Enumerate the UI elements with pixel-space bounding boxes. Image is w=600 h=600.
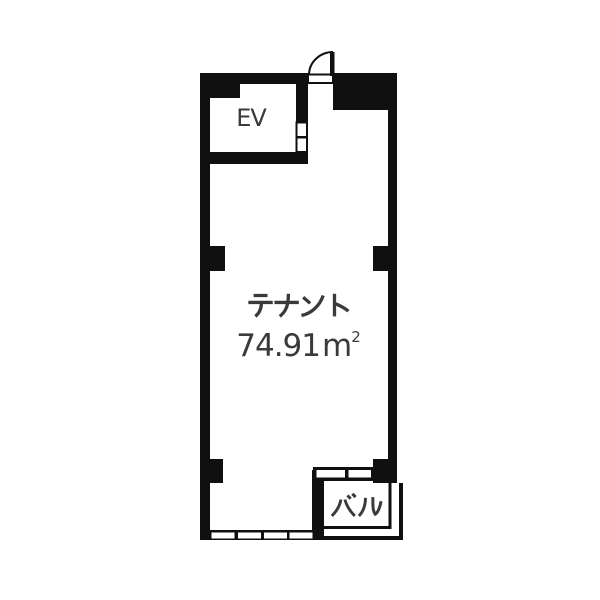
right-wall bbox=[388, 110, 397, 483]
door-leaf bbox=[330, 52, 335, 76]
kana-te bbox=[248, 295, 272, 316]
elevator-label: EV bbox=[236, 104, 267, 132]
right-wall-pillar-mid bbox=[373, 246, 388, 271]
window-pane bbox=[238, 533, 261, 539]
kana-to bbox=[335, 294, 349, 317]
railing-inner-bottom bbox=[324, 526, 392, 529]
entrance-doorway bbox=[308, 75, 333, 84]
kana-n bbox=[301, 295, 323, 315]
balcony-window-band bbox=[313, 467, 375, 481]
floor-plan-drawing: EV 74.91m2 bbox=[0, 0, 600, 600]
left-wall-pillar-lower bbox=[210, 459, 223, 483]
tenant-label bbox=[248, 294, 348, 317]
elevator-door-panel-upper bbox=[297, 123, 308, 138]
top-right-wall-block bbox=[333, 73, 397, 110]
elevator-door bbox=[297, 123, 308, 153]
railing-outer-bottom bbox=[324, 536, 403, 540]
left-wall bbox=[200, 73, 210, 540]
door-swing-arc bbox=[309, 52, 333, 75]
floor-plan-page: EV 74.91m2 bbox=[0, 0, 600, 600]
kana-ru bbox=[359, 497, 381, 516]
balcony-window-pane bbox=[349, 470, 372, 478]
top-wall bbox=[200, 73, 308, 84]
elevator-corner-pillar bbox=[210, 84, 240, 98]
right-wall-pillar-lower bbox=[373, 459, 397, 483]
left-wall-pillar-mid bbox=[210, 246, 225, 271]
kana-na bbox=[274, 294, 298, 317]
tenant-area-label: 74.91m2 bbox=[236, 328, 360, 364]
window-pane bbox=[212, 533, 235, 539]
window-pane bbox=[264, 533, 287, 539]
railing-outer-right bbox=[399, 483, 403, 540]
window-pane bbox=[290, 533, 313, 539]
balcony-window-pane bbox=[317, 470, 346, 478]
entrance-door bbox=[308, 52, 335, 83]
elevator-bottom-wall bbox=[210, 152, 308, 164]
balcony-label bbox=[332, 494, 381, 516]
kana-ba bbox=[332, 494, 356, 516]
elevator-door-panel-lower bbox=[297, 138, 308, 153]
railing-inner-right bbox=[389, 481, 392, 529]
